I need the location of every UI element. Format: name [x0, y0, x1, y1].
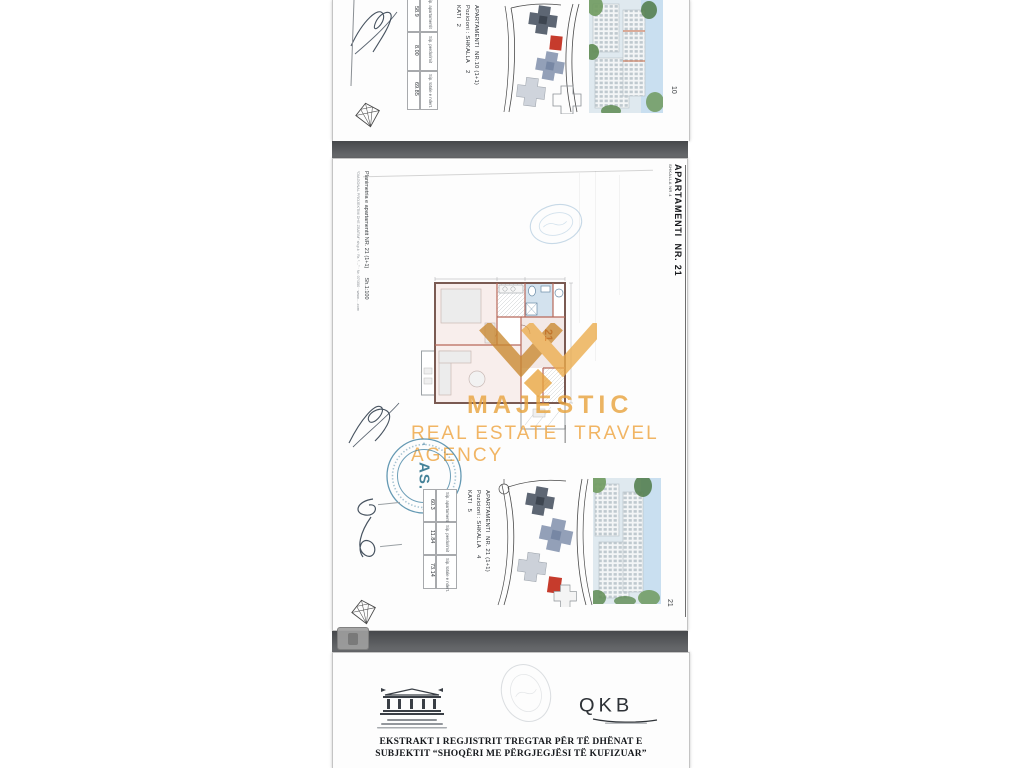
building-footprint [527, 4, 559, 36]
table-cell: Sip. totale e ndert. [436, 555, 457, 589]
page-header: APARTAMENTI NR. 21 SHKALLA NR.4 [668, 164, 683, 276]
table-cell: Sip. apartamentit [436, 489, 457, 522]
table-header: Sip. totale e ndert. [428, 74, 433, 108]
registry-extract-title: EKSTRAKT I REGJISTRIT TREGTAR PËR TË DHË… [361, 736, 661, 760]
highlighted-unit [549, 35, 562, 50]
table-value: 69.85 [413, 82, 419, 96]
caption-line: Pozicioni : SHKALLA 4 [473, 490, 482, 572]
registry-title-line: EKSTRAKT I REGJISTRIT TREGTAR PËR TË DHË… [361, 736, 661, 748]
table-value: 8.00 [413, 45, 419, 56]
building-footprint [516, 77, 547, 108]
building-footprint [516, 551, 548, 583]
scanned-page-apartment-10: 58.9 Sip. apartamentit 8.00 Sip. perdori… [332, 0, 690, 141]
scanned-document-viewer: 58.9 Sip. apartamentit 8.00 Sip. perdori… [0, 0, 1024, 768]
table-cell: Sip. perdorimit [436, 522, 457, 555]
drawing-title: Planimetria e apartamentit NR. 21 (1+1) … [363, 171, 369, 300]
building-footprint [537, 516, 575, 554]
table-cell: 69.85 [407, 71, 420, 110]
page-header-title: APARTAMENTI NR. 21 [673, 164, 683, 276]
caption-line: APARTAMENTI NR.10 (1+1) [471, 5, 480, 85]
site-plan [503, 2, 589, 114]
table-cell: Sip. totale e ndert. [420, 71, 438, 110]
table-header: Sip. apartamentit [445, 492, 450, 524]
table-cell: 60.3 [423, 489, 436, 522]
registry-title-line: SUBJEKTIT “SHOQËRI ME PËRGJEGJËSI TË KUF… [361, 748, 661, 760]
table-value: 60.3 [429, 499, 435, 510]
watermark-name: MAJESTIC [467, 391, 633, 420]
site-plan [496, 477, 594, 607]
table-cell: 8.00 [407, 32, 420, 71]
area-table: 60.3 Sip. apartamentit 11.84 Sip. perdor… [423, 489, 457, 589]
table-header: Sip. totale e ndert. [445, 558, 450, 592]
table-cell: 58.9 [407, 0, 420, 32]
table-value: 11.84 [429, 530, 435, 543]
faint-stamp [497, 661, 555, 725]
table-value: 58.9 [413, 6, 419, 17]
building-footprint [534, 50, 566, 82]
table-header: Sip. perdorimit [428, 36, 433, 63]
scanned-page-apartment-21: APARTAMENTI NR. 21 SHKALLA NR.4 Planimet… [332, 158, 688, 631]
page-separator [332, 631, 688, 652]
qkb-logo-text: QKB [579, 696, 633, 718]
faint-stamp [527, 199, 585, 249]
table-header: Sip. perdorimit [445, 525, 450, 552]
table-cell: 73.14 [423, 555, 436, 589]
government-emblem-icon [373, 687, 451, 731]
apartment-caption: APARTAMENTI NR. 21 (1+1) Pozicioni : SHK… [464, 490, 491, 572]
gem-logo-icon [346, 594, 382, 630]
stamp-center-text: AS. [416, 462, 433, 490]
viewer-overlay-button[interactable] [337, 627, 369, 650]
qkb-logo-swoosh [591, 717, 659, 725]
page-number: 21 [666, 599, 673, 607]
table-value: 73.14 [429, 563, 435, 577]
scan-line [363, 170, 653, 178]
caption-line: APARTAMENTI NR. 21 (1+1) [482, 490, 491, 572]
scan-streak [619, 175, 620, 295]
caption-line: KATI 5 [464, 490, 473, 572]
caption-line: Pozicioni : SHKALLA 2 [462, 5, 471, 85]
building-photo [589, 0, 663, 113]
table-cell: 11.84 [423, 522, 436, 555]
header-rule-line [685, 165, 686, 617]
page-number: 10 [670, 86, 677, 94]
scanned-page-registry-extract: QKB EKSTRAKT I REGJISTRIT TREGTAR PËR TË… [332, 652, 690, 768]
gem-logo-icon [350, 97, 386, 133]
overlay-button-glyph [348, 633, 358, 645]
table-cell: Sip. perdorimit [420, 32, 438, 71]
apartment-caption: APARTAMENTI NR.10 (1+1) Pozicioni : SHKA… [453, 5, 480, 85]
drawing-footer: “DIAGONAL PROJEKTIM DHE ZBATIM” sh.p.k ·… [356, 171, 360, 311]
caption-line: KATI 2 [453, 5, 462, 85]
area-table: 58.9 Sip. apartamentit 8.00 Sip. perdori… [407, 0, 438, 110]
building-footprint [524, 485, 556, 517]
building-photo [593, 478, 661, 604]
table-cell: Sip. apartamentit [420, 0, 438, 32]
tagline-divider: | [563, 423, 570, 444]
table-header: Sip. apartamentit [428, 0, 433, 29]
qkb-logo: QKB [579, 695, 633, 718]
page-separator [332, 141, 688, 158]
